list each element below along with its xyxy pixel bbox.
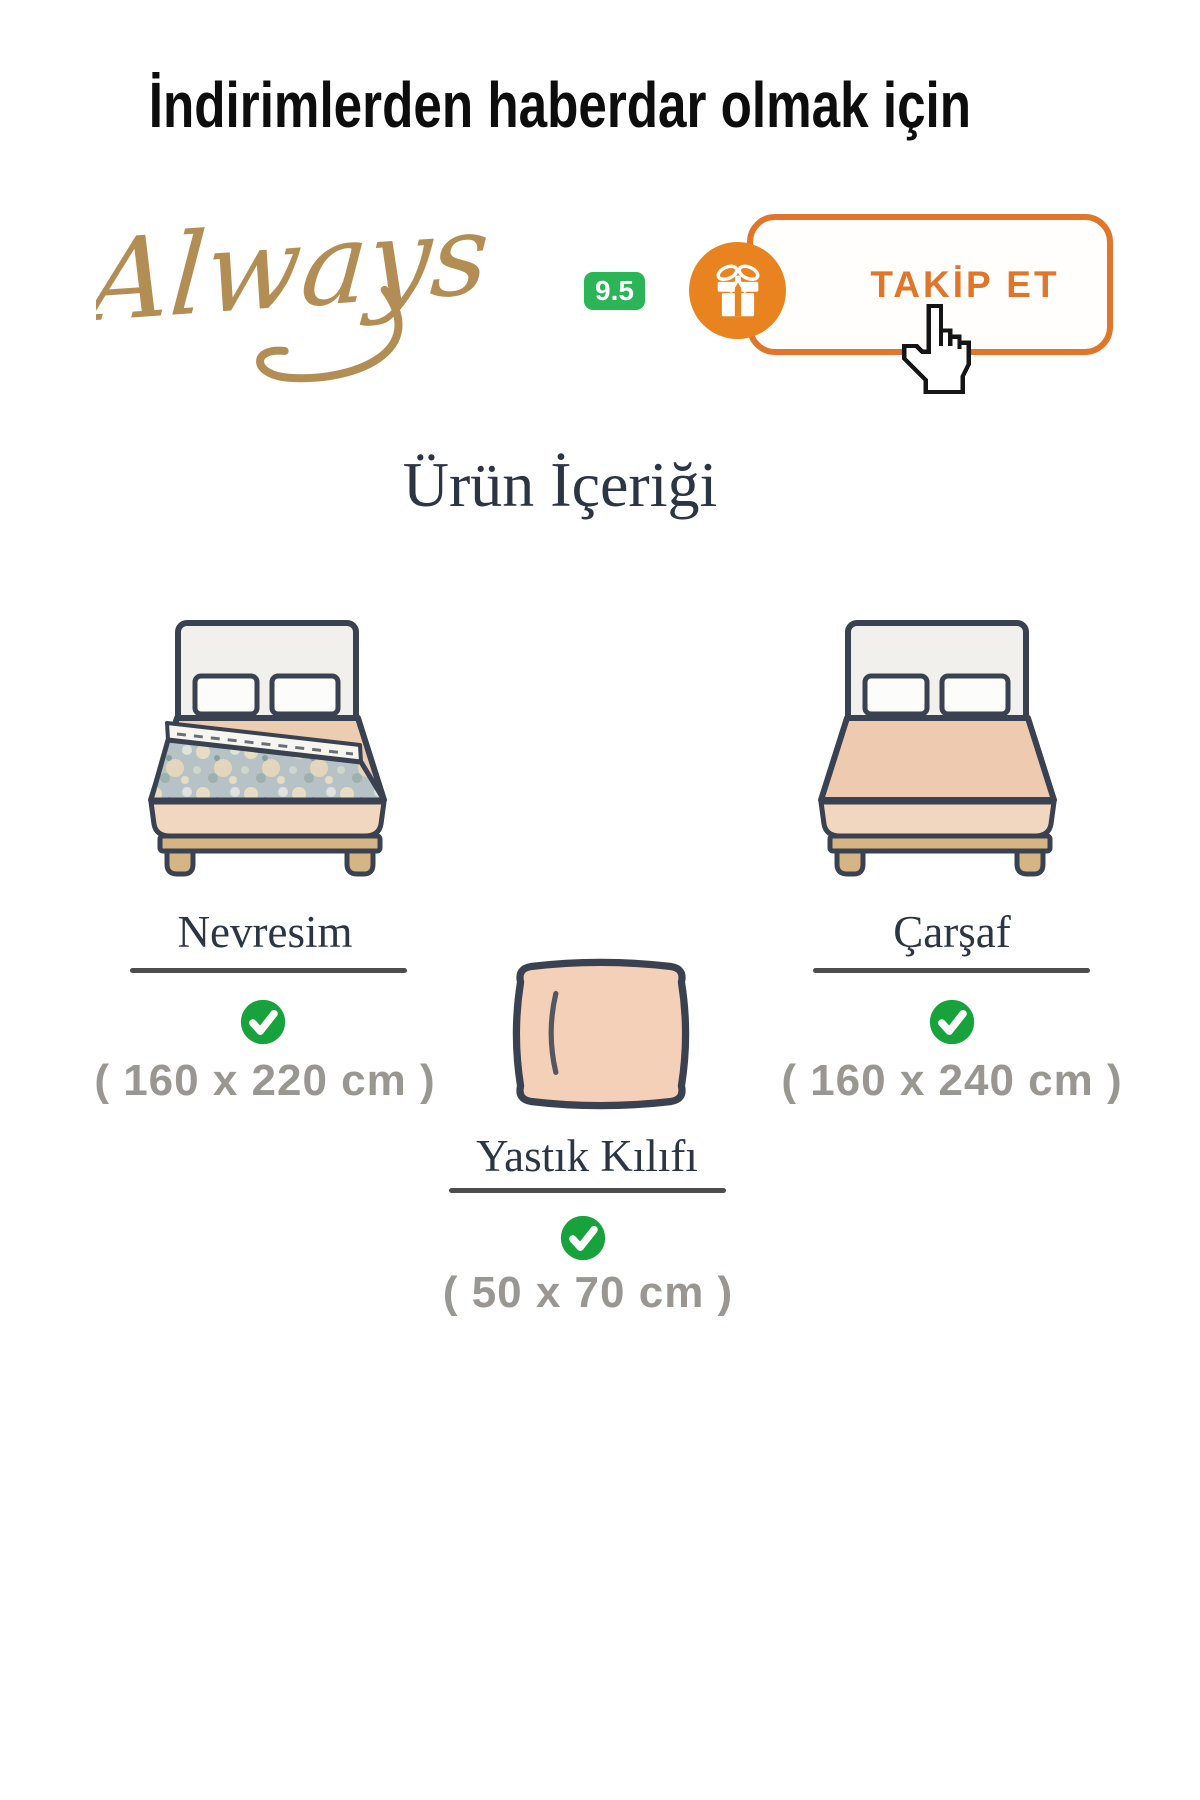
- item-carsaf-size: ( 160 x 240 cm ): [772, 1056, 1132, 1106]
- headline-text: İndirimlerden haberdar olmak için: [149, 68, 971, 142]
- check-icon: [239, 998, 287, 1046]
- brand-logo: Always: [96, 184, 500, 384]
- item-yastik-rule: [449, 1188, 726, 1193]
- bed-duvet-illustration: [145, 616, 390, 881]
- seller-rating-badge: 9.5: [584, 272, 645, 310]
- headline-wrap: İndirimlerden haberdar olmak için: [0, 68, 1120, 142]
- item-carsaf-rule: [813, 968, 1090, 973]
- brand-logo-text: Always: [96, 189, 493, 349]
- item-nevresim-size: ( 160 x 220 cm ): [85, 1056, 445, 1106]
- bed-sheet-illustration: [815, 616, 1060, 881]
- check-icon: [928, 998, 976, 1046]
- seller-rating-value: 9.5: [595, 275, 634, 307]
- item-yastik-label: Yastık Kılıfı: [437, 1130, 737, 1182]
- item-carsaf-label: Çarşaf: [802, 906, 1102, 958]
- pillow-illustration: [505, 956, 697, 1112]
- check-icon: [559, 1214, 607, 1262]
- promo-image: İndirimlerden haberdar olmak için Always…: [0, 0, 1200, 1800]
- item-nevresim-label: Nevresim: [115, 906, 415, 958]
- section-title-wrap: Ürün İçeriği: [0, 448, 1120, 522]
- gift-icon-circle[interactable]: [689, 242, 786, 339]
- item-nevresim-rule: [130, 968, 407, 973]
- hand-cursor-icon: [898, 300, 978, 398]
- item-yastik-size: ( 50 x 70 cm ): [408, 1268, 768, 1318]
- gift-icon: [703, 256, 773, 326]
- section-title: Ürün İçeriği: [403, 449, 718, 520]
